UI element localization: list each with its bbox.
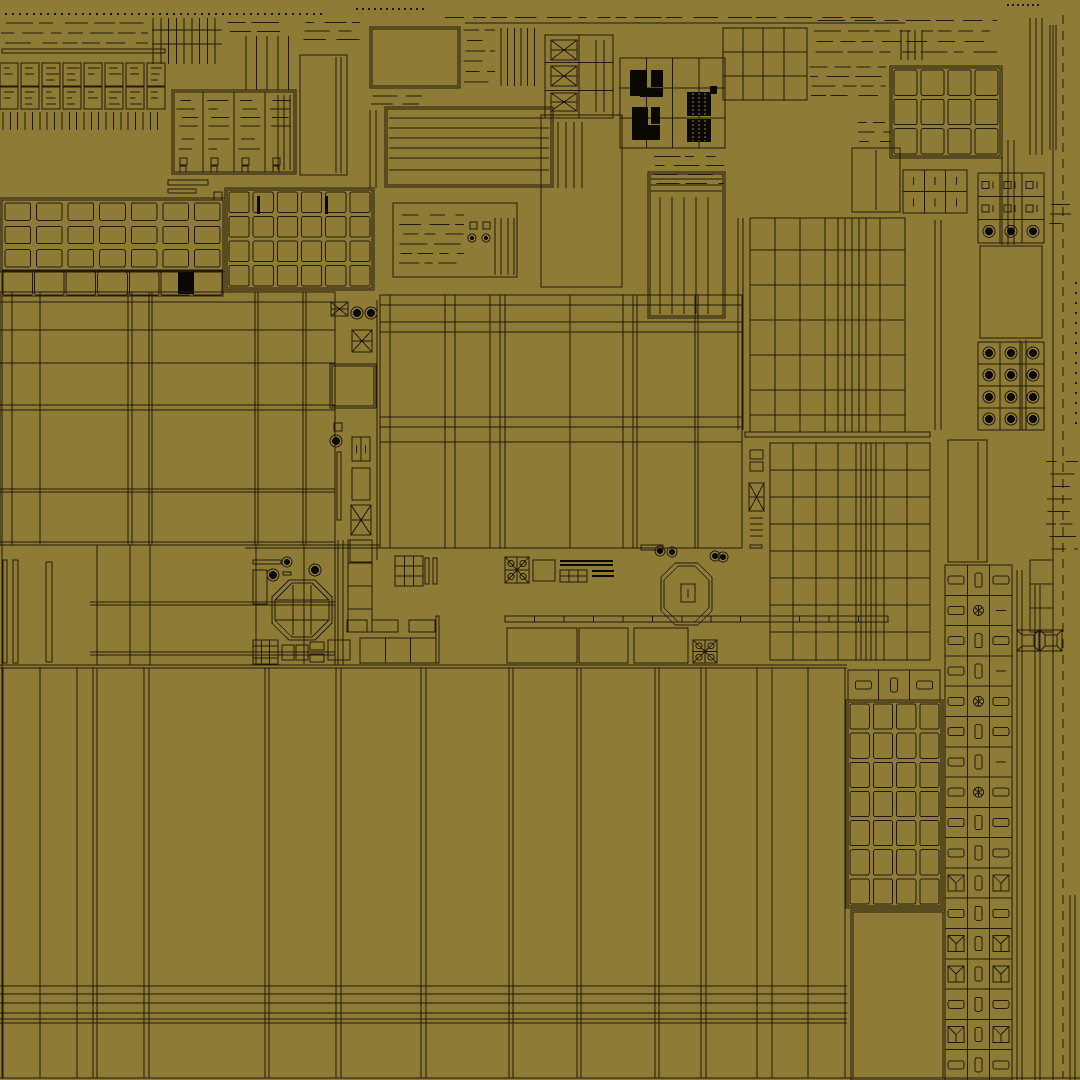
uv-texture-atlas (0, 0, 1080, 1080)
uv-wireframe-canvas (0, 0, 1080, 1080)
